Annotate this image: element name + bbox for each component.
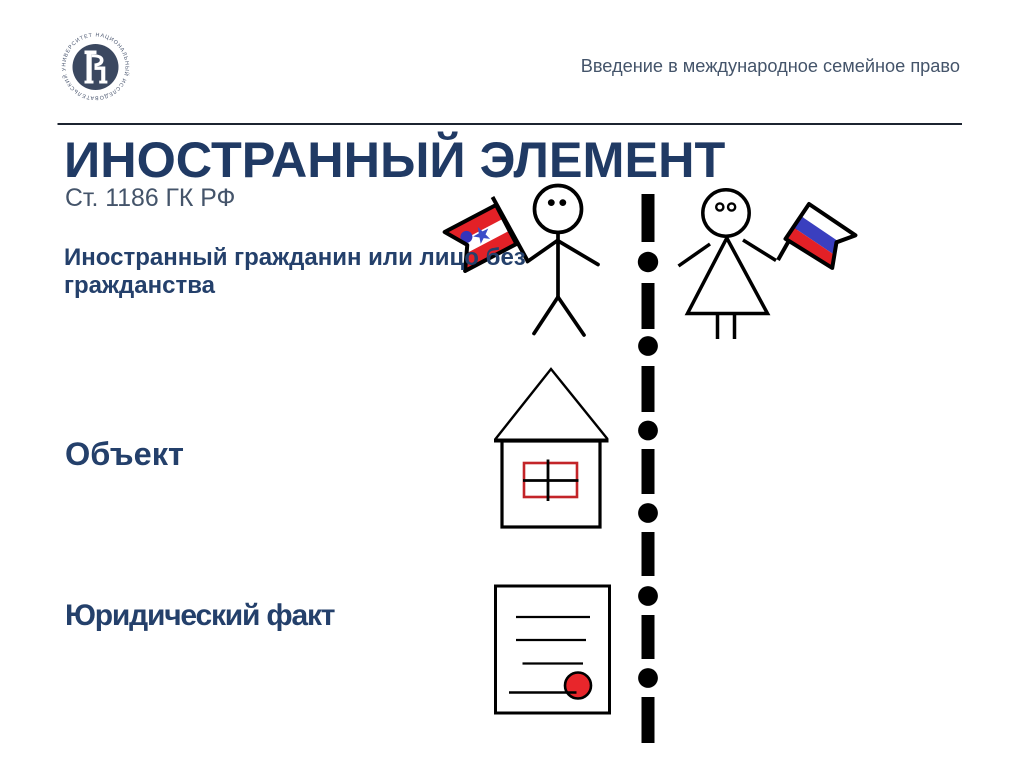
svg-text:НАЦИОНАЛЬНЫЙ ИССЛЕДОВАТЕЛЬСКИЙ: НАЦИОНАЛЬНЫЙ ИССЛЕДОВАТЕЛЬСКИЙ УНИВЕРСИТ… xyxy=(0,0,131,101)
